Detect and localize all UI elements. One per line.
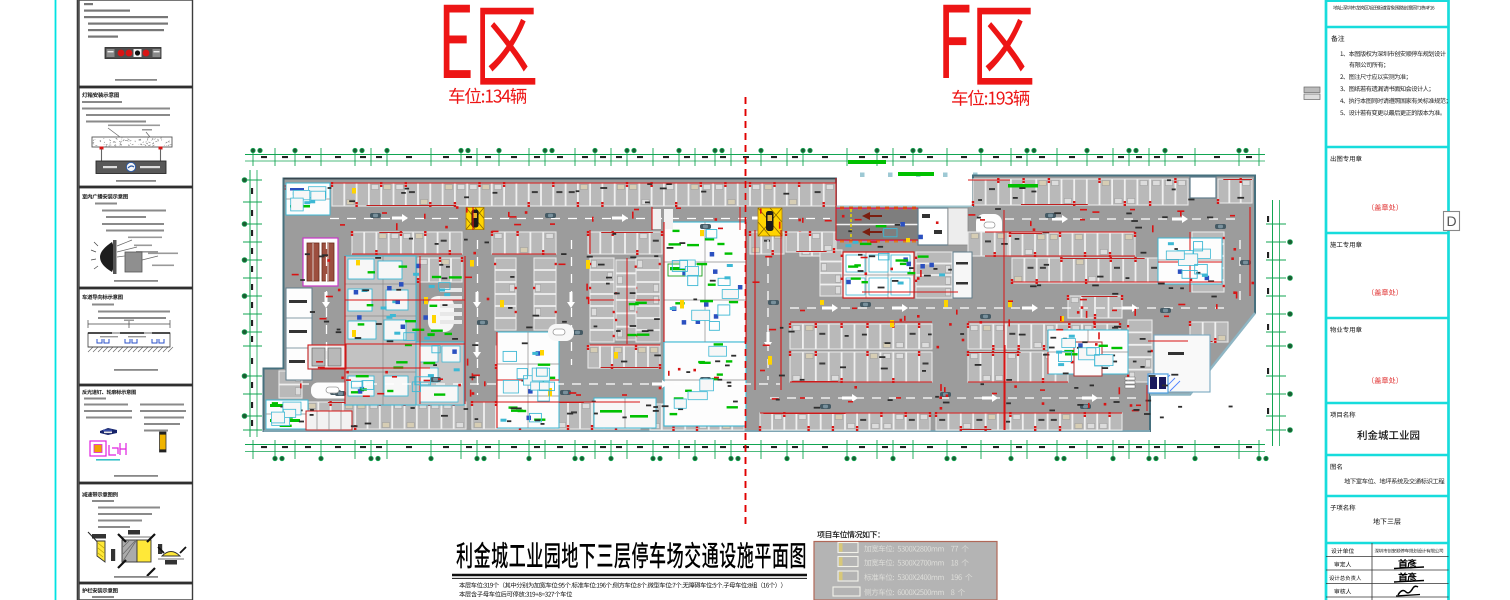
svg-text:D: D (1446, 213, 1456, 229)
